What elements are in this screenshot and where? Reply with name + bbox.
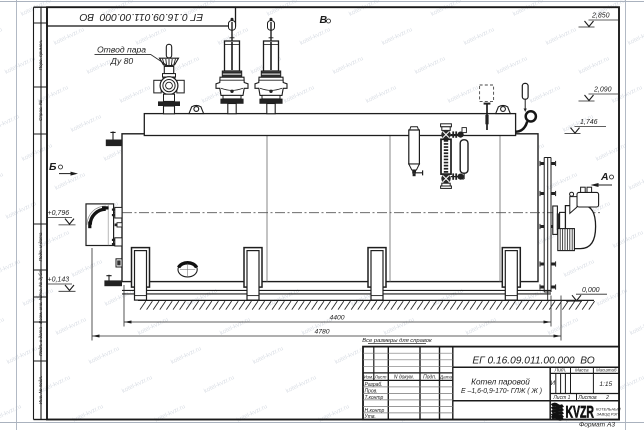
svg-text:Масса: Масса: [575, 368, 589, 373]
svg-text:Все размеры для справок: Все размеры для справок: [362, 338, 432, 344]
svg-text:Лист: Лист: [552, 395, 566, 401]
svg-text:Изм.: Изм.: [364, 375, 374, 380]
svg-text:Инв. № дубл.: Инв. № дубл.: [38, 269, 43, 297]
svg-text:Т.контр: Т.контр: [365, 395, 384, 401]
svg-text:Пров.: Пров.: [365, 388, 378, 394]
svg-text:ЕГ 0.16.09.011.00.000 ВО: ЕГ 0.16.09.011.00.000 ВО: [79, 11, 203, 22]
svg-text:Перв. примен.: Перв. примен.: [38, 40, 43, 71]
svg-text:2,090: 2,090: [593, 87, 612, 94]
svg-text:Дата: Дата: [439, 375, 453, 380]
svg-text:Подп. и дата: Подп. и дата: [38, 327, 43, 356]
svg-text:1:15: 1:15: [599, 381, 612, 388]
svg-text:1,746: 1,746: [580, 119, 598, 126]
svg-text:Н.контр: Н.контр: [365, 408, 385, 414]
svg-text:4400: 4400: [329, 314, 344, 321]
svg-text:Разраб.: Разраб.: [365, 382, 383, 388]
svg-text:Отвод пара: Отвод пара: [97, 45, 146, 55]
svg-text:Инв. № подл.: Инв. № подл.: [38, 376, 43, 405]
svg-text:Подп. и дата: Подп. и дата: [38, 232, 43, 261]
svg-text:ЗАВОД РЭП: ЗАВОД РЭП: [597, 412, 620, 417]
svg-text:2,850: 2,850: [591, 13, 610, 20]
svg-text:Листов: Листов: [577, 395, 597, 401]
svg-text:ЕГ 0.16.09.011.00.000 ВО: ЕГ 0.16.09.011.00.000 ВО: [472, 356, 594, 367]
svg-text:N докум.: N докум.: [394, 375, 414, 381]
svg-text:Утв.: Утв.: [365, 414, 376, 420]
svg-text:Взам. инв. №: Взам. инв. №: [38, 295, 43, 323]
svg-text:Справ. №: Справ. №: [38, 100, 43, 121]
svg-text:Лист: Лист: [374, 375, 387, 380]
svg-text:Формат А3: Формат А3: [579, 422, 615, 429]
svg-text:Лит.: Лит.: [554, 368, 567, 374]
svg-text:И: И: [551, 380, 556, 387]
svg-text:2: 2: [605, 395, 609, 401]
svg-text:Ду 80: Ду 80: [110, 56, 134, 66]
svg-text:+0,143: +0,143: [48, 276, 70, 283]
svg-text:0,000: 0,000: [582, 287, 600, 294]
svg-text:1: 1: [568, 395, 571, 401]
svg-text:KVZR: KVZR: [566, 403, 595, 421]
svg-text:Б: Б: [49, 161, 57, 173]
svg-text:Масштаб: Масштаб: [596, 368, 617, 373]
svg-text:+0,796: +0,796: [48, 210, 70, 217]
svg-text:Подп.: Подп.: [423, 375, 436, 381]
svg-text:Е –1,6-0,9-170- ГЛЖ ( Ж ): Е –1,6-0,9-170- ГЛЖ ( Ж ): [461, 388, 542, 395]
svg-text:А: А: [600, 171, 609, 183]
svg-text:4780: 4780: [314, 328, 329, 335]
svg-text:Котел паровой: Котел паровой: [471, 378, 530, 387]
